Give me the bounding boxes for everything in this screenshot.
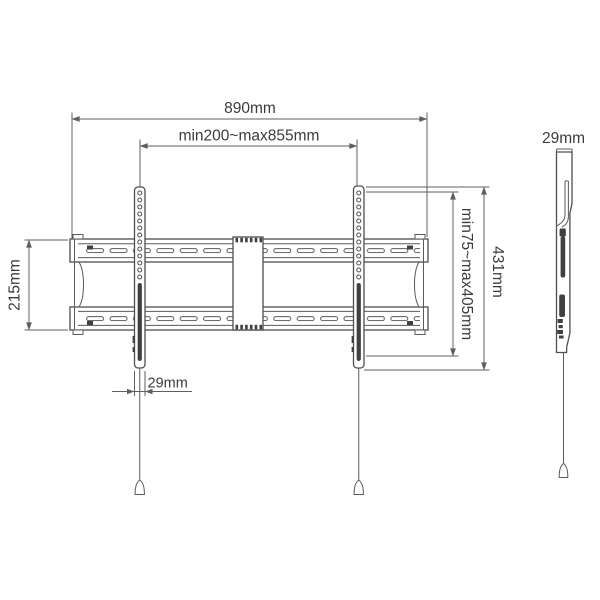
dim-label-plate-height: 215mm	[7, 259, 24, 311]
pull-cord-right	[354, 368, 363, 495]
side-view: 29mm	[542, 130, 585, 478]
vertical-rail-left	[133, 187, 145, 368]
tv-mount-dimension-drawing: 890mm min200~max855mm 215mm min75~max405…	[0, 0, 600, 600]
bell-pull-icon	[559, 463, 568, 477]
bell-pull-icon	[135, 480, 144, 495]
dim-label-depth: 29mm	[542, 130, 585, 147]
center-plate	[233, 237, 263, 330]
dim-label-rail-length: 431mm	[489, 246, 506, 298]
dim-label-vesa-range: min75~max405mm	[458, 208, 475, 340]
dim-rail-spacing: min200~max855mm	[140, 128, 357, 187]
dim-rail-length: 431mm	[364, 187, 506, 370]
dim-label-rail-spacing: min200~max855mm	[179, 128, 320, 145]
dim-plate-height: 215mm	[7, 240, 69, 330]
dim-overall-width: 890mm	[72, 100, 427, 239]
dim-rail-width: 29mm	[112, 371, 192, 396]
bell-pull-icon	[354, 480, 363, 495]
dim-label-overall-width: 890mm	[224, 100, 276, 117]
pull-cord-side	[559, 353, 568, 478]
dim-label-rail-width: 29mm	[148, 376, 188, 392]
side-profile	[557, 152, 573, 353]
front-view: 890mm min200~max855mm 215mm min75~max405…	[7, 100, 507, 495]
vertical-rail-right	[352, 186, 364, 368]
pull-cord-left	[135, 368, 144, 495]
